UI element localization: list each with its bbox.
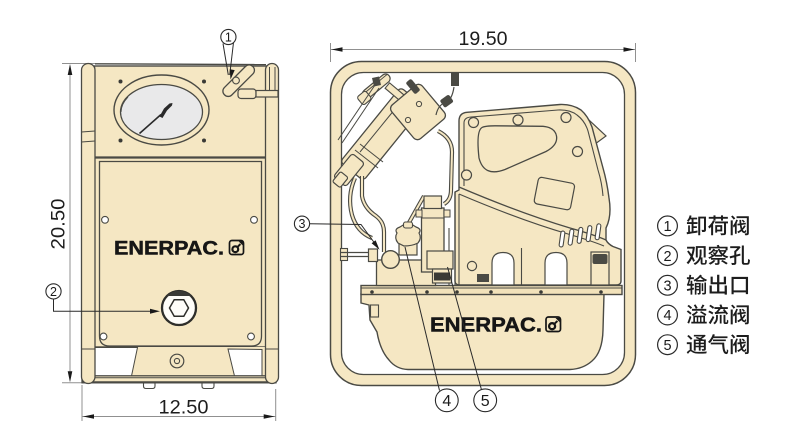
svg-text:2: 2	[663, 249, 671, 265]
svg-text:2: 2	[50, 285, 57, 299]
svg-text:3: 3	[663, 279, 671, 295]
svg-text:19.50: 19.50	[459, 28, 508, 50]
svg-text:12.50: 12.50	[159, 397, 209, 419]
svg-text:5: 5	[481, 393, 490, 410]
svg-text:4: 4	[442, 393, 451, 410]
svg-text:3: 3	[299, 217, 306, 231]
svg-text:1: 1	[225, 30, 232, 44]
svg-text:20.50: 20.50	[48, 198, 70, 249]
svg-text:ENERPAC.: ENERPAC.	[430, 314, 542, 337]
svg-text:4: 4	[663, 308, 671, 324]
svg-text:5: 5	[663, 338, 671, 354]
svg-text:1: 1	[663, 219, 671, 235]
svg-text:ENERPAC.: ENERPAC.	[114, 238, 224, 260]
